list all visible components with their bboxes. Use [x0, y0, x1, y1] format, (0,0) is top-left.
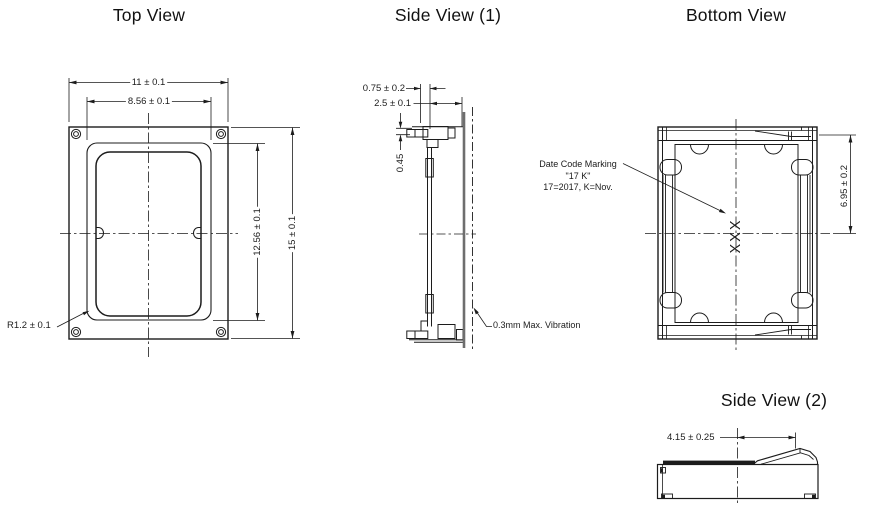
dim-top-width-outer: 11 ± 0.1	[130, 77, 168, 87]
dim-top-width-inner: 8.56 ± 0.1	[126, 96, 172, 106]
sound-port-wedge	[753, 449, 818, 465]
date-code-example: "17 K"	[566, 171, 591, 183]
top-terminal-tab	[407, 127, 464, 148]
dim-bottom-half-height: 6.95 ± 0.2	[840, 162, 850, 208]
dim-port-offset: 4.15 ± 0.25	[665, 432, 716, 442]
dim-top-height-inner: 12.56 ± 0.1	[252, 206, 262, 257]
side2-top-plate	[663, 461, 755, 465]
bottom-terminal-tab	[407, 313, 464, 342]
surround	[87, 143, 211, 320]
vibration-note: 0.3mm Max. Vibration	[491, 321, 582, 331]
top-view-drawing	[57, 78, 300, 357]
dim-depth: 2.5 ± 0.1	[372, 98, 413, 108]
dim-top-height-outer: 15 ± 0.1	[287, 214, 297, 252]
title-side-view-2: Side View (2)	[719, 391, 829, 410]
side-view-1-drawing	[396, 84, 492, 352]
date-code-label: Date Code Marking	[539, 159, 617, 171]
title-side-view-1: Side View (1)	[393, 6, 503, 25]
dim-corner-radius: R1.2 ± 0.1	[5, 321, 53, 331]
date-code-legend: 17=2017, K=Nov.	[543, 182, 612, 194]
dim-tab-offset: 0.75 ± 0.2	[361, 83, 407, 93]
title-top-view: Top View	[111, 6, 187, 25]
dim-tab-thickness: 0.45	[395, 151, 405, 174]
date-code-marking-xxx: XXX	[729, 216, 745, 255]
technical-drawing-page: Top View Side View (1) Bottom View Side …	[0, 0, 870, 508]
title-bottom-view: Bottom View	[684, 6, 788, 25]
